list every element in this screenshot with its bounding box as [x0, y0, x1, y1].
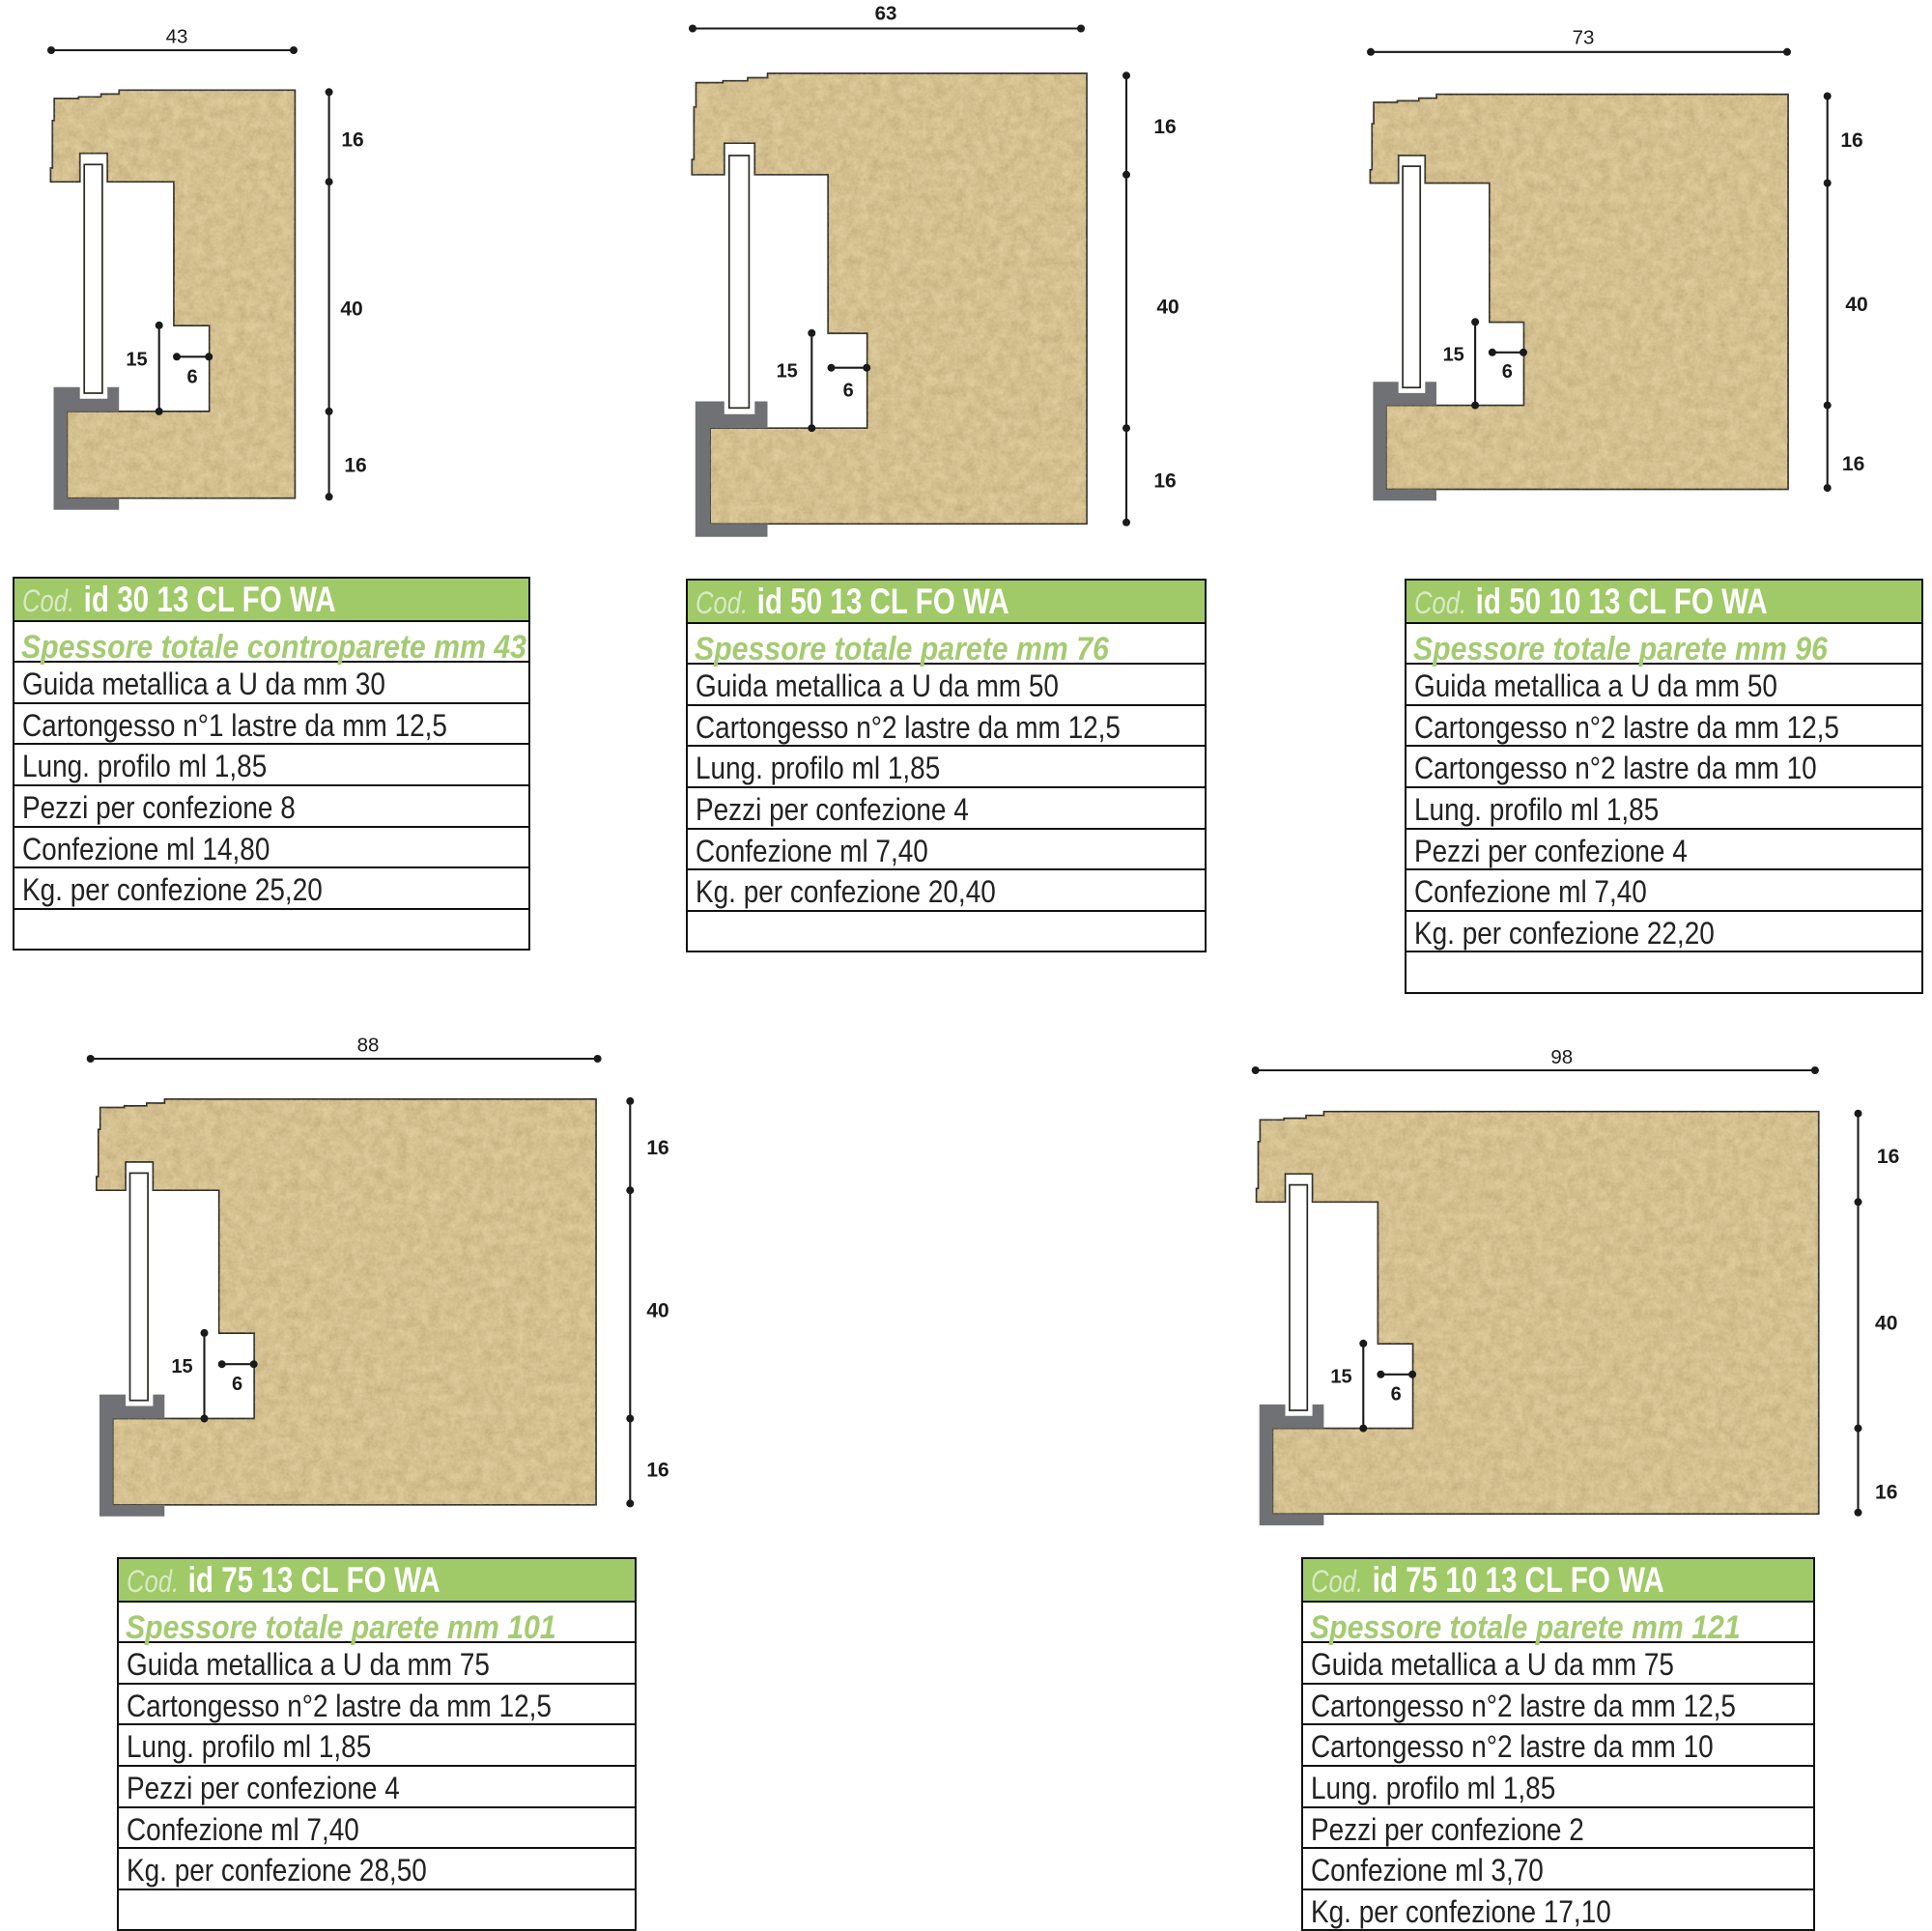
svg-text:40: 40 — [646, 1299, 668, 1321]
svg-text:16: 16 — [341, 129, 363, 152]
svg-text:73: 73 — [1573, 26, 1595, 48]
svg-text:16: 16 — [1153, 470, 1176, 493]
svg-text:40: 40 — [1875, 1313, 1897, 1335]
svg-text:16: 16 — [646, 1137, 668, 1159]
svg-text:15: 15 — [1330, 1367, 1351, 1388]
svg-text:16: 16 — [1842, 453, 1864, 475]
svg-text:16: 16 — [646, 1459, 668, 1481]
svg-text:6: 6 — [232, 1374, 242, 1395]
svg-text:40: 40 — [1156, 297, 1179, 319]
svg-text:6: 6 — [1502, 361, 1513, 383]
svg-text:15: 15 — [171, 1356, 192, 1377]
svg-text:98: 98 — [1550, 1046, 1573, 1068]
svg-text:88: 88 — [357, 1034, 380, 1056]
svg-text:15: 15 — [777, 361, 798, 383]
svg-text:40: 40 — [1845, 294, 1867, 316]
svg-text:63: 63 — [875, 2, 897, 24]
svg-text:16: 16 — [1840, 129, 1862, 152]
svg-text:16: 16 — [344, 455, 366, 477]
svg-text:15: 15 — [1443, 345, 1464, 366]
svg-text:6: 6 — [1391, 1384, 1402, 1406]
svg-text:16: 16 — [1875, 1481, 1897, 1503]
svg-text:43: 43 — [166, 25, 188, 47]
svg-text:6: 6 — [843, 381, 854, 402]
svg-text:15: 15 — [126, 349, 147, 370]
svg-text:40: 40 — [340, 298, 362, 321]
svg-text:6: 6 — [186, 366, 197, 387]
svg-text:16: 16 — [1877, 1146, 1899, 1168]
svg-text:16: 16 — [1153, 116, 1176, 138]
